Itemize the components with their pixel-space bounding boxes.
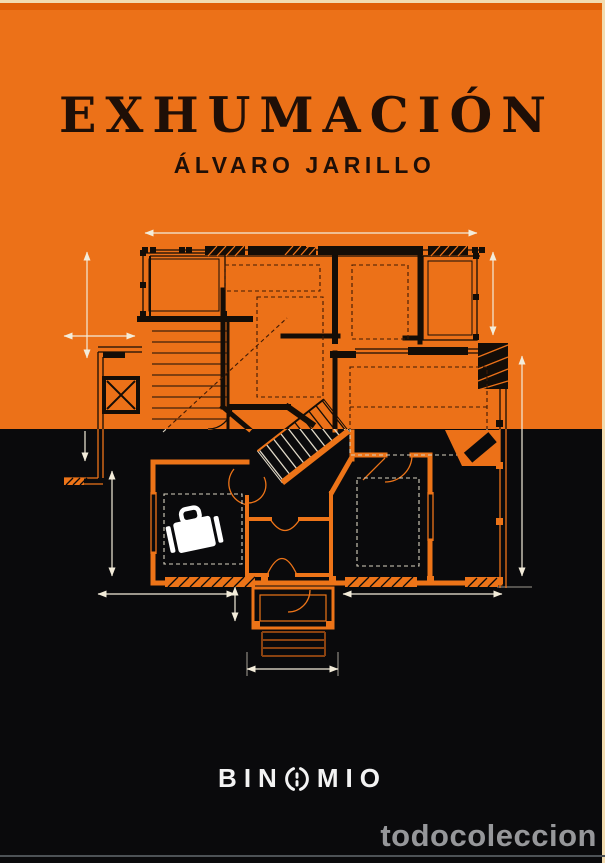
floor-plan-illustration	[0, 0, 605, 863]
photo-edge-bottom-line	[0, 855, 605, 857]
book-cover: EXHUMACIÓN ÁLVARO JARILLO	[0, 0, 605, 863]
todocoleccion-watermark: todocoleccion	[380, 818, 597, 854]
publisher-logo-left: BIN	[218, 763, 284, 794]
publisher-logo-right: MIO	[317, 763, 387, 794]
binomio-o-icon	[284, 765, 310, 793]
photo-edge-orange-line	[0, 3, 605, 10]
publisher-logo: BIN MIO	[0, 763, 605, 794]
suitcase-icon	[163, 503, 225, 555]
entry-steps	[262, 632, 325, 656]
